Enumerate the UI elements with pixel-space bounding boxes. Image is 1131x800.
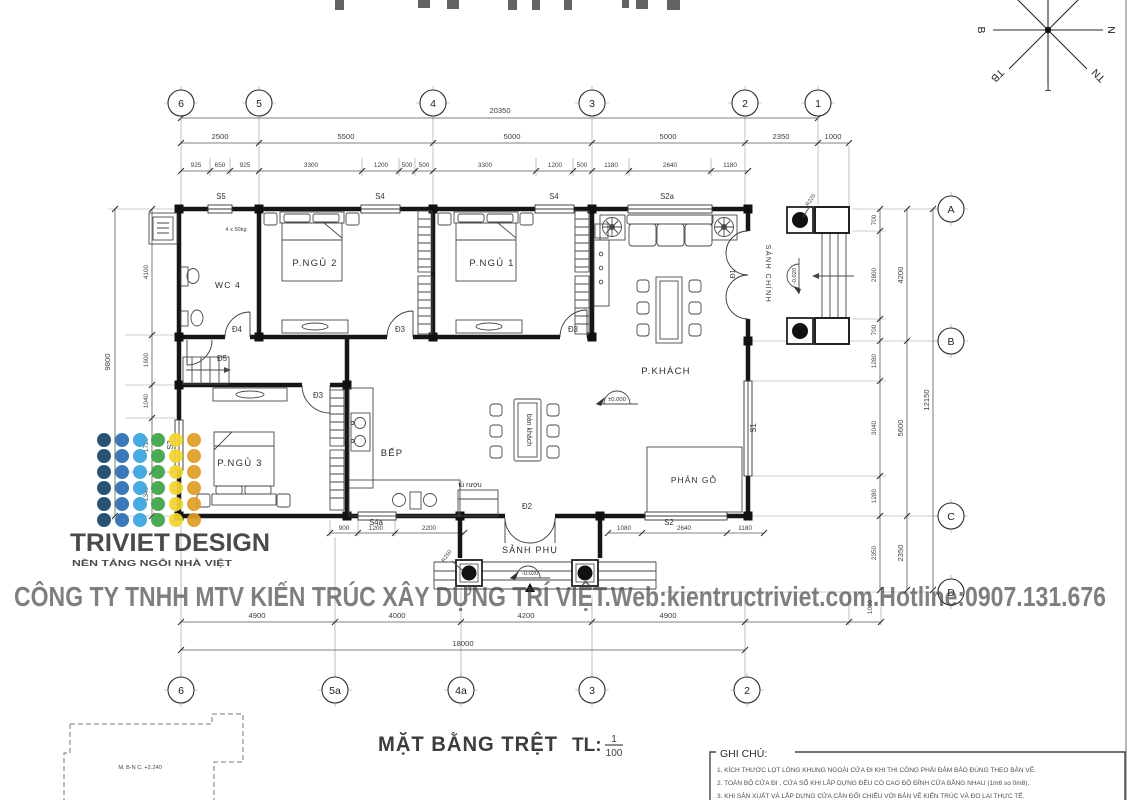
- dim: 2800: [871, 267, 878, 282]
- door-tag: Đ5: [217, 354, 228, 363]
- guest-table-set: bàn khách: [490, 399, 559, 461]
- bed2-furniture: [264, 212, 359, 333]
- room-label-bed2: P.NGỦ 2: [292, 257, 337, 269]
- cabinet: [594, 240, 609, 306]
- logo-dots-col4: [151, 433, 165, 527]
- compass-east: N: [1105, 26, 1117, 34]
- compass-rose: B N T TB TN Đ ĐB ĐN: [975, 0, 1117, 93]
- porch-column: [578, 566, 593, 581]
- toilet-bowl: [191, 310, 203, 326]
- column-radius-note: R220: [805, 193, 818, 207]
- exterior-unit: [149, 213, 177, 244]
- floor-plan-drawing: 20350 2500 5500 5000 5000 2350 1000 925 …: [0, 0, 1131, 800]
- dim: 1200: [374, 162, 389, 169]
- dim: 2350: [773, 132, 790, 141]
- level-marker-main-porch: -0.020: [787, 258, 801, 294]
- grid-label: A: [947, 204, 954, 216]
- chair: [547, 404, 559, 416]
- site-note: M. B-N C. +2.240: [118, 765, 161, 771]
- cooktop-burner: [393, 494, 406, 507]
- chair: [689, 302, 701, 314]
- title-scale-den: 100: [606, 748, 623, 759]
- door-d5-swing: [187, 340, 212, 365]
- dim: 3300: [304, 162, 319, 169]
- drawing-sheet: 20350 2500 5500 5000 5000 2350 1000 925 …: [0, 0, 1131, 800]
- wine-cabinet-label: tủ rượu: [458, 481, 481, 489]
- grid-label: 5a: [329, 685, 341, 697]
- window-tag: S2a: [660, 192, 675, 201]
- cooktop-burner: [424, 494, 437, 507]
- dim: 500: [577, 162, 588, 169]
- door-tag: Đ3: [313, 391, 323, 400]
- grid-label: 3: [589, 98, 595, 110]
- chair: [490, 425, 502, 437]
- level-marker-side-porch: -0.020: [510, 566, 550, 580]
- compass-southwest: TB: [988, 66, 1006, 84]
- grid-label: 2: [744, 685, 750, 697]
- dim: 1180: [723, 162, 737, 169]
- dim: 700: [871, 324, 878, 335]
- note-line: 2. TOÀN BỘ CỬA ĐI , CỬA SỔ KHI LẮP DỰNG …: [717, 777, 1029, 787]
- sink-bowl: [355, 436, 366, 447]
- grid-bubbles-bottom: 6 5a 4a 3 2: [164, 673, 764, 707]
- clipped-title-fragment: [335, 0, 680, 10]
- room-label-living: P.KHÁCH: [641, 366, 690, 377]
- chair: [689, 280, 701, 292]
- dim: 1180: [604, 162, 618, 169]
- dim: 700: [871, 214, 878, 225]
- dim-total-bottom: 18000: [452, 639, 473, 648]
- nightstand: [264, 213, 277, 225]
- room-label-wc: WC 4: [215, 280, 241, 290]
- nightstand: [520, 213, 533, 225]
- dim: 1040: [143, 393, 150, 408]
- logo-tagline: NỀN TẢNG NGÔI NHÀ VIỆT: [72, 557, 233, 568]
- logo-brand-1: TRIVIET: [70, 529, 170, 557]
- dim-total-left: 9800: [103, 354, 112, 371]
- grid-label: B: [947, 336, 954, 348]
- grid-label: 3: [589, 685, 595, 697]
- entry-steps: [818, 233, 854, 318]
- notes-block: GHI CHÚ: 1. KÍCH THƯỚC LỌT LÒNG KHUNG NG…: [710, 747, 1125, 800]
- sofa-cushion: [685, 224, 712, 246]
- porch-column: [792, 212, 808, 228]
- window-tag: S4: [375, 192, 385, 201]
- dim: 5600: [896, 420, 905, 437]
- windows: [175, 205, 752, 520]
- logo-dots-col1: [97, 433, 111, 527]
- level-marker-living: ±0.000: [596, 391, 638, 406]
- pillow: [458, 214, 484, 222]
- room-label-kitchen: BẾP: [381, 448, 404, 459]
- bed: [456, 223, 516, 281]
- logo-brand-2: DESIGN: [174, 529, 270, 557]
- grid-label: C: [947, 511, 955, 523]
- compass-south: T: [1044, 81, 1051, 93]
- dim: 2200: [422, 525, 437, 532]
- pillow: [284, 214, 310, 222]
- cabinet-small: [595, 224, 608, 238]
- pillow: [216, 486, 242, 494]
- compass-center: [1045, 27, 1051, 33]
- note-line: 1. KÍCH THƯỚC LỌT LÒNG KHUNG NGOÀI CỬA Đ…: [717, 765, 1036, 774]
- chair: [490, 446, 502, 458]
- room-label-bed3: P.NGỦ 3: [217, 457, 262, 469]
- dim: 5000: [660, 132, 677, 141]
- notes-title: GHI CHÚ:: [720, 747, 767, 760]
- chair: [637, 280, 649, 292]
- platform-label: PHẢN GỖ: [671, 474, 717, 485]
- chair: [637, 302, 649, 314]
- sofa-cushion: [629, 224, 656, 246]
- kitchen-sink-unit: [351, 413, 370, 451]
- dim: 500: [402, 162, 413, 169]
- dresser: [213, 388, 287, 401]
- kitchen-fixtures: [349, 388, 498, 516]
- dim: 1180: [738, 525, 752, 532]
- window-tag: S4a: [369, 518, 384, 527]
- chair: [490, 404, 502, 416]
- dim: 3040: [871, 420, 878, 435]
- bed-headboard: [212, 494, 276, 505]
- wc-fixtures: 4 x 50kg: [181, 227, 247, 326]
- grid-label: 2: [742, 98, 748, 110]
- logo-dots-col6: [187, 433, 201, 527]
- door-tag: Đ3: [568, 325, 578, 334]
- bed: [282, 223, 342, 281]
- door-d2-swing: [505, 518, 555, 543]
- note-line: 3. KHI SẢN XUẤT VÀ LẮP DỰNG CỬA CẦN ĐỐI …: [717, 790, 1025, 800]
- pillow: [245, 486, 271, 494]
- dim: 500: [419, 162, 430, 169]
- dim: 2350: [896, 545, 905, 562]
- dim: 2640: [663, 162, 678, 169]
- wood-platform: PHẢN GỖ: [647, 447, 742, 512]
- nightstand: [277, 494, 290, 507]
- dim: 2350: [871, 545, 878, 560]
- window-tag: S2: [664, 518, 674, 527]
- dim: 650: [215, 162, 226, 169]
- kitchen-counter-bottom: [349, 480, 460, 516]
- wash-basin: [187, 269, 199, 284]
- grid-label: 4: [430, 98, 436, 110]
- chair: [547, 425, 559, 437]
- logo-dots-col2: [115, 433, 129, 527]
- svg-text:-0.020: -0.020: [792, 267, 798, 284]
- dim: 925: [240, 162, 251, 169]
- door-tag: Đ2: [522, 502, 532, 511]
- dim: 1280: [871, 488, 878, 503]
- dim: 1000: [825, 132, 842, 141]
- pillow: [487, 214, 513, 222]
- dim: 4200: [896, 267, 905, 284]
- nightstand: [346, 213, 359, 225]
- sofa-back: [627, 215, 713, 224]
- bed1-furniture: [438, 212, 533, 333]
- dim: 1200: [548, 162, 563, 169]
- dim: 2640: [677, 525, 692, 532]
- grid-label: 6: [178, 98, 184, 110]
- dim-total-top: 20350: [489, 106, 510, 115]
- dim: 925: [191, 162, 202, 169]
- chair: [689, 324, 701, 336]
- chair: [547, 446, 559, 458]
- sink-bowl: [355, 418, 366, 429]
- living-furniture: [594, 215, 737, 343]
- nightstand: [438, 213, 451, 225]
- dim: 4200: [518, 611, 535, 620]
- svg-text:±0.000: ±0.000: [608, 397, 627, 403]
- dim: 900: [339, 525, 350, 532]
- compass-west: B: [975, 26, 987, 33]
- room-label-side-porch: SẢNH PHỤ: [502, 544, 558, 555]
- room-labels: WC 4 P.NGỦ 2 P.NGỦ 1 P.NGỦ 3 BẾP P.KHÁCH…: [215, 257, 691, 555]
- compass-southeast: TN: [1090, 66, 1108, 84]
- dim: 4100: [143, 264, 150, 279]
- dim: 4900: [660, 611, 677, 620]
- dresser: [456, 320, 522, 333]
- grid-label: 6: [178, 685, 184, 697]
- dim: 5500: [338, 132, 355, 141]
- grid-label: 5: [256, 98, 262, 110]
- window-tag: S4: [549, 192, 559, 201]
- title-main: MẶT BẰNG TRỆT: [378, 732, 558, 756]
- guest-table-label: bàn khách: [525, 414, 532, 446]
- room-label-bed1: P.NGỦ 1: [469, 257, 514, 269]
- column-radius-note: R250: [441, 549, 454, 563]
- grid-label: 1: [815, 98, 821, 110]
- bed3-furniture: [197, 388, 290, 507]
- dim: 1080: [617, 525, 632, 532]
- title-scale-label: TL:: [572, 735, 602, 756]
- door-tag: Đ4: [232, 325, 243, 334]
- dim: 1600: [143, 352, 150, 367]
- pillow: [313, 214, 339, 222]
- grid-label: 4a: [455, 685, 467, 697]
- door-d1-label: Đ1: [730, 269, 737, 278]
- watermark-text: CÔNG TY TNHH MTV KIẾN TRÚC XÂY DỰNG TRÍ …: [14, 580, 1106, 612]
- cooktop: [410, 492, 421, 509]
- door-tag: Đ3: [395, 325, 405, 334]
- porch-column: [462, 566, 477, 581]
- dim: 4000: [389, 611, 406, 620]
- chair: [637, 324, 649, 336]
- wc-annotation: 4 x 50kg: [225, 227, 246, 233]
- dim: 4900: [249, 611, 266, 620]
- porch-column: [792, 323, 808, 339]
- svg-text:-0.020: -0.020: [522, 571, 539, 577]
- window-tag: S1: [749, 423, 758, 433]
- kitchen-counter-left: [349, 388, 373, 488]
- dim: 1280: [871, 353, 878, 368]
- grid-bubbles-right: A B C D: [934, 192, 968, 609]
- main-porch-label: SẢNH CHÍNH: [764, 245, 773, 304]
- dresser: [282, 320, 348, 333]
- toilet-tank: [181, 311, 188, 326]
- dim: 3300: [478, 162, 493, 169]
- site-outline: M. B-N C. +2.240: [64, 714, 243, 800]
- window-tag: S5: [216, 192, 226, 201]
- sofa-cushion: [657, 224, 684, 246]
- dim-total-right: 12150: [922, 389, 931, 410]
- title-scale-num: 1: [611, 734, 617, 745]
- dim: 5000: [504, 132, 521, 141]
- wardrobes: [330, 211, 589, 510]
- dim: 2500: [212, 132, 229, 141]
- drawing-title: MẶT BẰNG TRỆT TL: 1 100: [378, 732, 623, 759]
